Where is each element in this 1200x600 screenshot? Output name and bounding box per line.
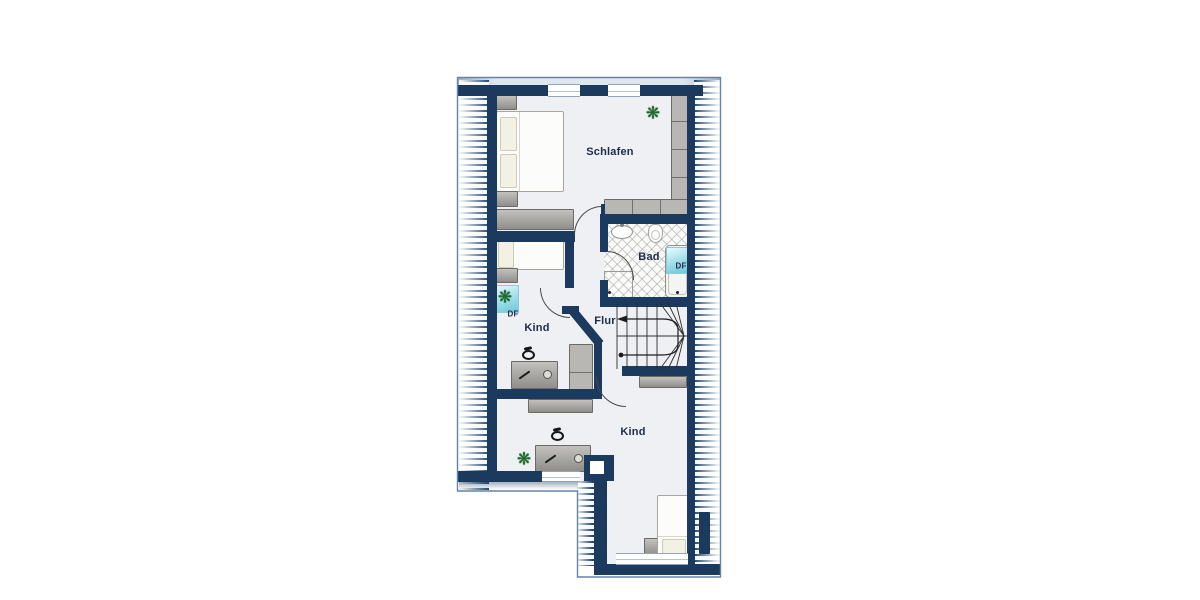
room-label-flur: Flur (594, 315, 616, 327)
roof-window-label-bad: DF (675, 262, 686, 271)
window-bottom-left (542, 471, 580, 482)
nightstand (496, 191, 518, 207)
wall-right (687, 85, 695, 575)
wardrobe (639, 376, 687, 388)
sideboard (528, 399, 593, 413)
window-top-1 (548, 84, 580, 97)
wall-left (487, 85, 497, 482)
wall-schlafen-bottom (487, 231, 575, 242)
desk-lamp (574, 454, 583, 463)
plant-icon: ❋ (646, 105, 660, 122)
blanket-fold (519, 112, 520, 191)
door-leaf-schlafen (601, 204, 605, 235)
pillow (500, 117, 517, 151)
wall-flur-kind-vertical (565, 233, 574, 288)
toilet-bowl (651, 230, 660, 240)
wall-bad-top (600, 214, 695, 224)
window-bottom (616, 553, 688, 565)
roof-window-label-kind: DF (507, 310, 518, 319)
cabinet (569, 344, 593, 393)
desk (535, 445, 591, 472)
desk-lamp (543, 370, 552, 379)
roof-hatch-left (459, 80, 489, 490)
single-bed (657, 495, 689, 557)
room-label-bad: Bad (638, 251, 659, 263)
wall-kind-divider (487, 389, 602, 399)
blanket-fold (658, 536, 688, 537)
roof-hatch-bottom-left (459, 481, 578, 491)
desk-pen (545, 454, 557, 463)
floor-plan-page: ❋ ❋ ❋ (0, 0, 1200, 600)
desk-chair (522, 350, 535, 360)
bathtub-drain (676, 291, 679, 294)
wall-stair-bottom (622, 366, 695, 376)
desk-pen (519, 370, 531, 379)
double-bed (496, 111, 564, 192)
wall-bottom (594, 564, 721, 575)
wall-step-vertical (594, 479, 607, 567)
chimney-flue (590, 461, 604, 474)
window-top-2 (608, 84, 640, 97)
sink (611, 225, 633, 239)
room-label-kind-bottom: Kind (620, 426, 645, 438)
pillow (498, 241, 514, 268)
roof-hatch-right (694, 80, 720, 574)
wall-bottom-left (458, 471, 542, 482)
plant-icon: ❋ (498, 289, 512, 306)
room-label-schlafen: Schlafen (586, 146, 633, 158)
watermark-band (699, 512, 710, 554)
wardrobe (604, 199, 690, 215)
desk (511, 361, 558, 389)
plant-icon: ❋ (517, 451, 531, 468)
wall-bad-bottom (600, 297, 695, 307)
nightstand (496, 95, 517, 110)
desk-chair (551, 431, 564, 441)
roof-hatch-bottom-middle (577, 481, 594, 566)
room-label-kind-mid: Kind (524, 322, 549, 334)
shower-drain (608, 291, 611, 294)
pillow (500, 154, 517, 188)
dresser (495, 209, 574, 230)
